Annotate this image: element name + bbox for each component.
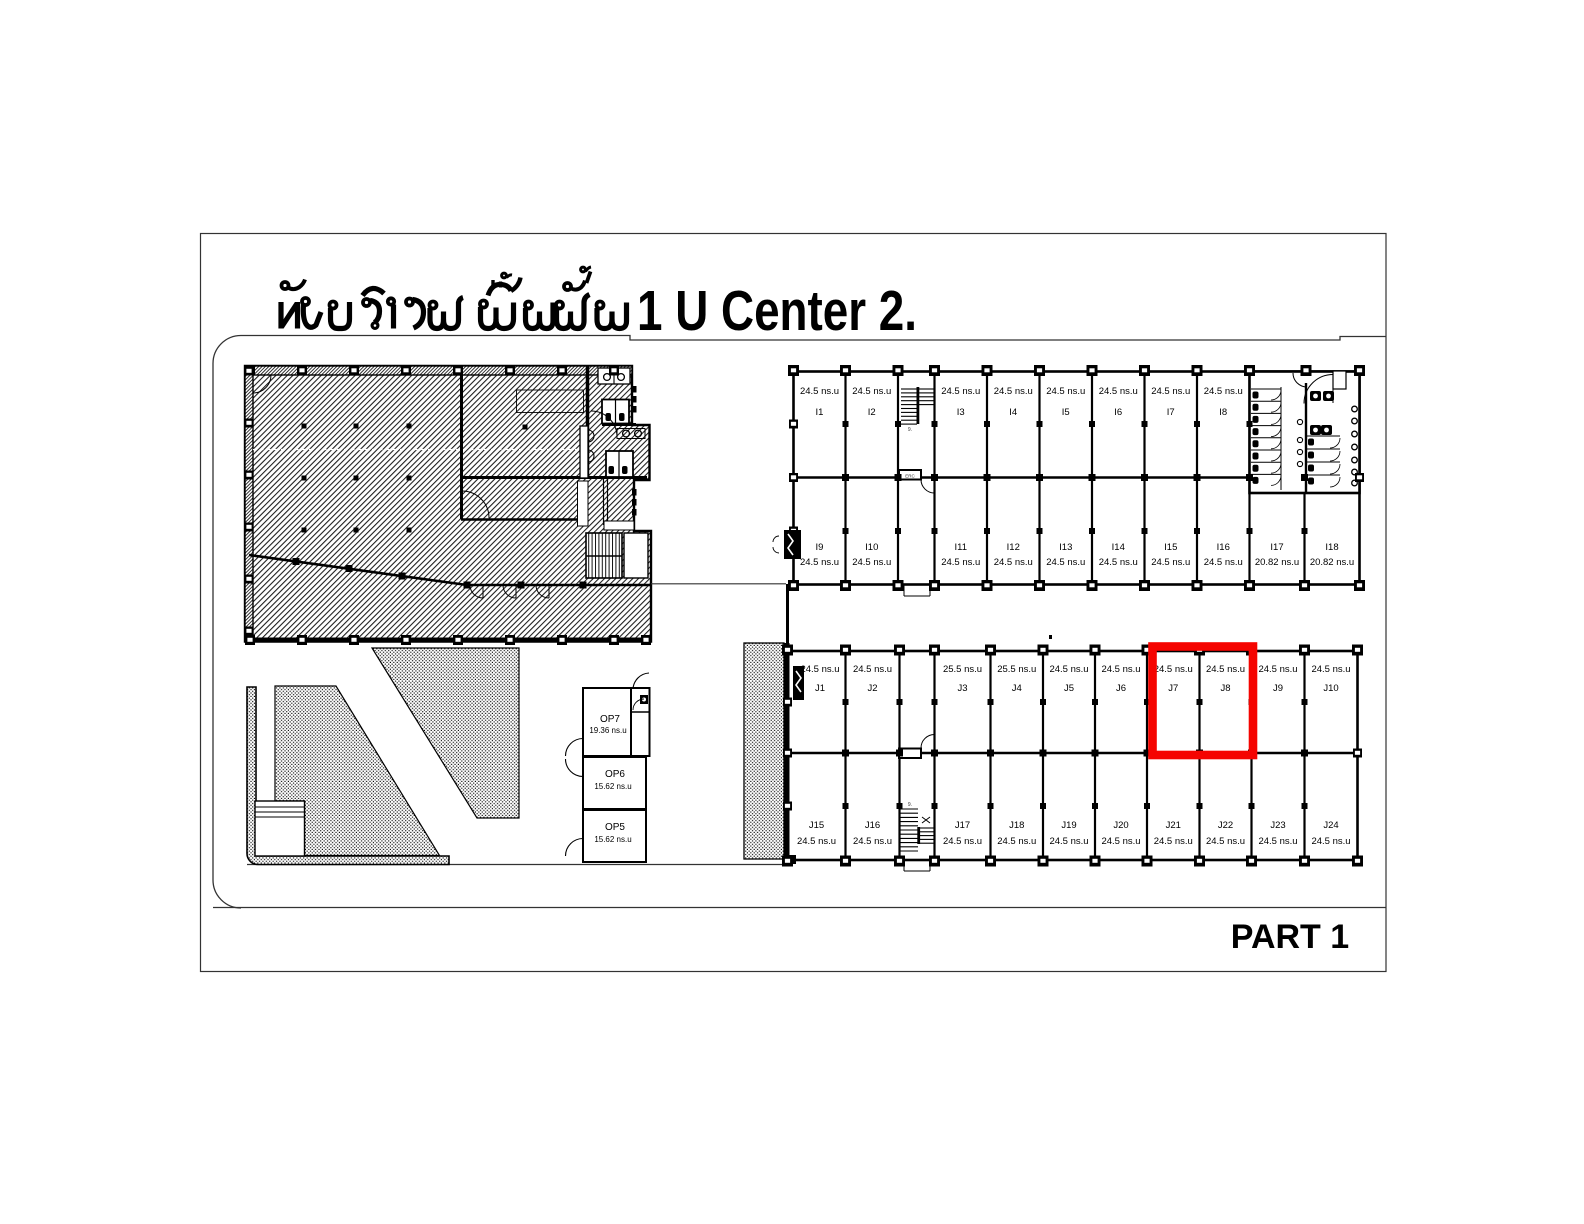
svg-text:24.5 ns.u: 24.5 ns.u <box>1101 664 1140 675</box>
svg-text:I6: I6 <box>1114 407 1122 418</box>
svg-text:24.5 ns.u: 24.5 ns.u <box>853 836 892 847</box>
svg-text:9.: 9. <box>908 802 912 808</box>
svg-text:I2: I2 <box>868 407 876 418</box>
svg-text:24.5 ns.u: 24.5 ns.u <box>1154 664 1193 675</box>
svg-text:24.5 ns.u: 24.5 ns.u <box>800 386 839 397</box>
svg-text:J22: J22 <box>1218 820 1233 831</box>
svg-text:24.5 ns.u: 24.5 ns.u <box>1311 664 1350 675</box>
svg-text:24.5 ns.u: 24.5 ns.u <box>1151 386 1190 397</box>
svg-text:24.5 ns.u: 24.5 ns.u <box>1258 836 1297 847</box>
svg-text:24.5 ns.u: 24.5 ns.u <box>1206 836 1245 847</box>
svg-text:24.5 ns.u: 24.5 ns.u <box>800 664 839 675</box>
svg-text:24.5 ns.u: 24.5 ns.u <box>1099 557 1138 568</box>
svg-text:24.5 ns.u: 24.5 ns.u <box>1101 836 1140 847</box>
svg-text:24.5 ns.u: 24.5 ns.u <box>997 836 1036 847</box>
svg-text:I15: I15 <box>1164 542 1177 553</box>
svg-text:I8: I8 <box>1219 407 1227 418</box>
svg-text:J4: J4 <box>1012 683 1022 694</box>
svg-text:J24: J24 <box>1323 820 1338 831</box>
svg-text:J9: J9 <box>1273 683 1283 694</box>
svg-text:I16: I16 <box>1217 542 1230 553</box>
svg-text:J2: J2 <box>867 683 877 694</box>
svg-text:25.5 ns.u: 25.5 ns.u <box>943 664 982 675</box>
svg-text:J18: J18 <box>1009 820 1024 831</box>
svg-text:J23: J23 <box>1270 820 1285 831</box>
svg-text:24.5 ns.u: 24.5 ns.u <box>994 386 1033 397</box>
svg-text:I3: I3 <box>957 407 965 418</box>
svg-text:24.5 ns.u: 24.5 ns.u <box>797 836 836 847</box>
svg-text:24.5 ns.u: 24.5 ns.u <box>941 386 980 397</box>
svg-text:J19: J19 <box>1061 820 1076 831</box>
svg-text:24.5 ns.u: 24.5 ns.u <box>1046 557 1085 568</box>
svg-text:J16: J16 <box>865 820 880 831</box>
svg-text:J8: J8 <box>1220 683 1230 694</box>
svg-text:I18: I18 <box>1325 542 1338 553</box>
svg-text:1 U Center 2.: 1 U Center 2. <box>637 279 917 343</box>
svg-text:J7: J7 <box>1168 683 1178 694</box>
svg-text:24.5 ns.u: 24.5 ns.u <box>1204 386 1243 397</box>
svg-text:24.5 ns.u: 24.5 ns.u <box>941 557 980 568</box>
svg-text:OP6: OP6 <box>605 769 625 780</box>
svg-text:24.5 ns.u: 24.5 ns.u <box>1311 836 1350 847</box>
svg-text:I11: I11 <box>954 542 967 553</box>
svg-text:19.36 ns.u: 19.36 ns.u <box>589 726 626 735</box>
svg-text:OP7: OP7 <box>600 714 620 725</box>
svg-text:20.82 ns.u: 20.82 ns.u <box>1310 557 1354 568</box>
svg-text:24.5 ns.u: 24.5 ns.u <box>943 836 982 847</box>
svg-text:24.5 ns.u: 24.5 ns.u <box>1049 664 1088 675</box>
svg-text:J15: J15 <box>809 820 824 831</box>
svg-text:I5: I5 <box>1062 407 1070 418</box>
svg-text:24.5 ns.u: 24.5 ns.u <box>800 557 839 568</box>
svg-text:I12: I12 <box>1007 542 1020 553</box>
svg-text:I9: I9 <box>816 542 824 553</box>
svg-text:J3: J3 <box>957 683 967 694</box>
svg-text:24.5 ns.u: 24.5 ns.u <box>1151 557 1190 568</box>
svg-text:J6: J6 <box>1116 683 1126 694</box>
svg-text:15.62 ns.u: 15.62 ns.u <box>594 835 631 844</box>
svg-text:I17: I17 <box>1270 542 1283 553</box>
svg-text:I4: I4 <box>1009 407 1017 418</box>
svg-text:PART 1: PART 1 <box>1231 918 1349 956</box>
svg-text:24.5 ns.u: 24.5 ns.u <box>1049 836 1088 847</box>
svg-text:24.5 ns.u: 24.5 ns.u <box>1154 836 1193 847</box>
svg-text:24.5 ns.u: 24.5 ns.u <box>1099 386 1138 397</box>
svg-text:20.82 ns.u: 20.82 ns.u <box>1255 557 1299 568</box>
svg-text:24.5 ns.u: 24.5 ns.u <box>1206 664 1245 675</box>
svg-text:I14: I14 <box>1112 542 1125 553</box>
svg-text:15.62 ns.u: 15.62 ns.u <box>594 782 631 791</box>
svg-text:24.5 ns.u: 24.5 ns.u <box>1046 386 1085 397</box>
svg-text:J10: J10 <box>1323 683 1338 694</box>
svg-text:24.5 ns.u: 24.5 ns.u <box>1204 557 1243 568</box>
svg-text:I1: I1 <box>816 407 824 418</box>
svg-text:24.5 ns.u: 24.5 ns.u <box>852 557 891 568</box>
svg-text:I13: I13 <box>1059 542 1072 553</box>
svg-text:I7: I7 <box>1167 407 1175 418</box>
svg-text:J5: J5 <box>1064 683 1074 694</box>
svg-text:J21: J21 <box>1166 820 1181 831</box>
svg-text:J1: J1 <box>815 683 825 694</box>
svg-text:I10: I10 <box>865 542 878 553</box>
svg-text:24.5 ns.u: 24.5 ns.u <box>852 386 891 397</box>
svg-text:J20: J20 <box>1113 820 1128 831</box>
svg-text:24.5 ns.u: 24.5 ns.u <box>1258 664 1297 675</box>
svg-text:24.5 ns.u: 24.5 ns.u <box>994 557 1033 568</box>
svg-text:9.: 9. <box>908 427 912 433</box>
svg-text:ERC: ERC <box>905 474 915 479</box>
svg-text:OP5: OP5 <box>605 822 625 833</box>
svg-text:J17: J17 <box>955 820 970 831</box>
svg-text:24.5 ns.u: 24.5 ns.u <box>853 664 892 675</box>
svg-text:25.5 ns.u: 25.5 ns.u <box>997 664 1036 675</box>
